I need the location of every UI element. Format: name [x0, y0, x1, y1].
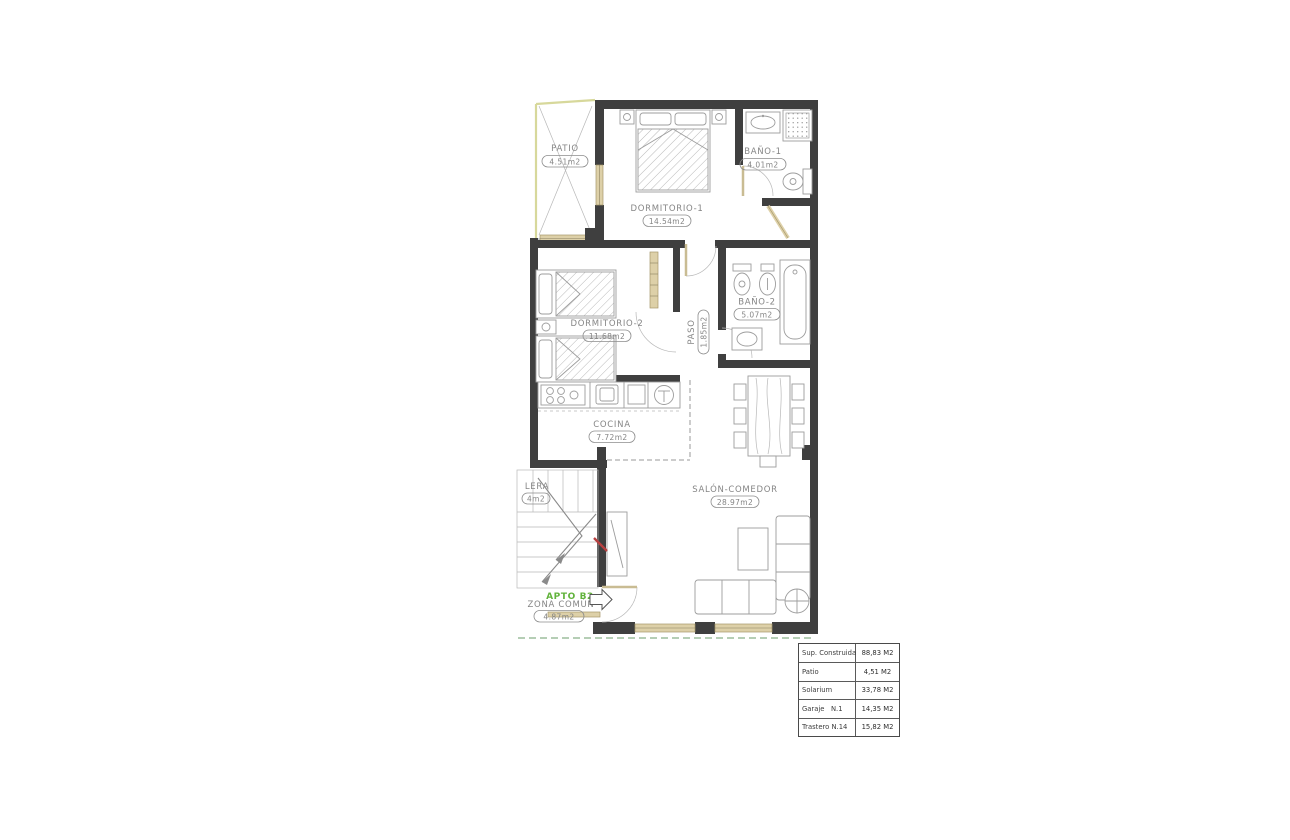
salon-dining	[734, 376, 804, 467]
wardrobe-dorm2	[650, 252, 658, 308]
table-cell-label: Garaje N.1	[799, 700, 856, 717]
apartment-tag: APTO B2	[546, 592, 594, 602]
wall-dorm2-nook	[673, 248, 680, 312]
wall-top	[595, 100, 818, 109]
floorplan-page: PATIO 4.51m2 DORMITORIO-1 14.54m2 BAÑO-1…	[0, 0, 1290, 840]
room-area-paso: 1.85m2	[700, 316, 709, 347]
coffee-table	[738, 528, 768, 570]
wall-bano2-bottom	[718, 360, 818, 368]
room-area-salon-comedor: 28.97m2	[717, 498, 753, 507]
sofa-right	[776, 516, 810, 600]
wall-patio-dorm1-a	[595, 100, 604, 165]
room-name-patio: PATIO	[551, 144, 579, 154]
room-label-paso: PASO 1.85m2	[687, 310, 709, 354]
room-area-dormitorio-1: 14.54m2	[649, 217, 685, 226]
wall-bottom-c	[772, 622, 818, 634]
room-area-escalera: 4m2	[527, 495, 545, 504]
wall-bano1-bottom	[762, 198, 810, 206]
room-name-salon-comedor: SALÓN-COMEDOR	[692, 483, 778, 495]
wall-bano1-left	[735, 100, 743, 165]
table-cell-value: 15,82 M2	[856, 719, 899, 736]
table-cell-value: 88,83 M2	[856, 644, 899, 662]
door-arc-dorm1	[686, 246, 716, 276]
table-row: Sup. Construida 88,83 M2	[799, 644, 899, 662]
room-name-bano-2: BAÑO-2	[738, 297, 776, 308]
door-arc-bano1	[743, 166, 773, 196]
bano2-sink	[732, 328, 762, 350]
wall-paso-bano2-a	[718, 248, 726, 330]
room-name-escalera: LERA	[525, 482, 549, 492]
room-area-cocina: 7.72m2	[596, 433, 627, 442]
area-summary-table: Sup. Construida 88,83 M2 Patio 4,51 M2 S…	[798, 643, 900, 737]
bano2-toilet	[734, 273, 750, 295]
table-cell-label: Sup. Construida	[799, 644, 856, 662]
table-row: Trastero N.14 15,82 M2	[799, 718, 899, 736]
room-area-patio: 4.51m2	[549, 158, 580, 167]
bano1-toilet-tank	[803, 169, 812, 194]
table-cell-value: 14,35 M2	[856, 700, 899, 717]
room-name-paso: PASO	[687, 319, 697, 344]
table-row: Garaje N.1 14,35 M2	[799, 699, 899, 717]
door-arc-dorm2	[636, 312, 676, 352]
table-cell-value: 4,51 M2	[856, 663, 899, 680]
table-row: Solarium 33,78 M2	[799, 681, 899, 699]
table-cell-label: Patio	[799, 663, 856, 680]
salon-sofa	[607, 512, 810, 614]
dorm1-bed	[620, 110, 726, 192]
table-cell-label: Solarium	[799, 682, 856, 699]
table-cell-value: 33,78 M2	[856, 682, 899, 699]
wall-mid-a	[530, 240, 685, 248]
room-area-bano-1: 4.01m2	[747, 161, 778, 170]
room-name-dormitorio-1: DORMITORIO-1	[630, 204, 703, 214]
room-name-bano-1: BAÑO-1	[744, 146, 782, 157]
patio-outline	[536, 100, 595, 242]
room-name-cocina: COCINA	[593, 420, 630, 430]
room-area-bano-2: 5.07m2	[741, 311, 772, 320]
table-row: Patio 4,51 M2	[799, 662, 899, 680]
wall-bottom-a	[593, 622, 635, 634]
wall-patio-dorm1-b	[595, 205, 604, 247]
room-area-zona-comun: 4.87m2	[543, 613, 574, 622]
table-cell-label: Trastero N.14	[799, 719, 856, 736]
room-name-dormitorio-2: DORMITORIO-2	[570, 319, 643, 329]
wall-bottom-b	[695, 622, 715, 634]
wall-mid-b	[715, 240, 818, 248]
wall-kitchen-bottom	[530, 460, 607, 468]
room-area-dormitorio-2: 11.68m2	[589, 332, 625, 341]
cocina-counter	[538, 382, 680, 411]
bano1-toilet	[783, 173, 803, 190]
floor-plan-svg: PATIO 4.51m2 DORMITORIO-1 14.54m2 BAÑO-1…	[0, 0, 1290, 840]
sofa-bottom	[695, 580, 776, 614]
